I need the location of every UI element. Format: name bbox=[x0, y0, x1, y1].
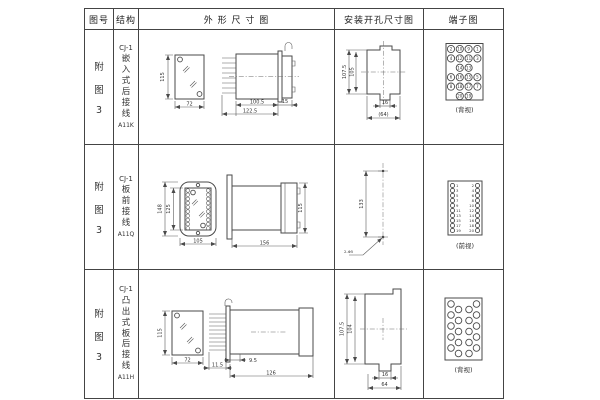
terminal-pins bbox=[209, 314, 226, 350]
structure-char: 接 bbox=[122, 99, 131, 108]
cell-structure-1: CJ-1 嵌 入 式 后 接 线 A11K bbox=[114, 30, 139, 145]
mounting-drawing-a11h: 107.5 104 16 64 bbox=[335, 270, 423, 398]
structure-char: 式 bbox=[122, 319, 131, 328]
cell-structure-3: CJ-1 凸 出 式 板 后 接 线 A11H bbox=[114, 270, 139, 399]
mounting-hole-icon bbox=[196, 183, 199, 186]
dim-label: 115 bbox=[298, 203, 304, 213]
svg-text:4: 4 bbox=[450, 56, 453, 61]
svg-text:1: 1 bbox=[476, 47, 479, 52]
svg-text:19: 19 bbox=[466, 94, 472, 99]
screw-mark-icon bbox=[180, 323, 187, 330]
svg-text:15: 15 bbox=[466, 75, 472, 80]
structure-char: 后 bbox=[122, 340, 131, 349]
screw-hole-icon bbox=[178, 57, 183, 62]
screw-mark-icon bbox=[187, 337, 194, 344]
svg-text:19: 19 bbox=[456, 228, 461, 233]
terminal-circles: 2 10 9 1 4 12 11 3 14 13 6 16 15 5 bbox=[447, 45, 481, 99]
figure-char: 图 bbox=[94, 202, 104, 216]
svg-text:11: 11 bbox=[466, 56, 472, 61]
svg-text:5: 5 bbox=[476, 75, 479, 80]
dim-label: 156 bbox=[260, 241, 270, 247]
screw-hole-icon bbox=[191, 190, 196, 195]
mounting-hole-icon bbox=[196, 231, 199, 234]
structure-model: CJ-1 bbox=[119, 45, 133, 52]
svg-text:12: 12 bbox=[457, 56, 463, 61]
screw-hole-icon bbox=[197, 92, 202, 97]
structure-model: CJ-1 bbox=[119, 286, 133, 293]
structure-code: A11H bbox=[118, 375, 134, 381]
terminal-strip bbox=[186, 189, 190, 230]
svg-text:10: 10 bbox=[457, 47, 463, 52]
header-structure: 结构 bbox=[114, 9, 139, 30]
figure-char: 图 bbox=[94, 82, 104, 96]
dim-label: 148 bbox=[158, 204, 164, 214]
structure-char: 式 bbox=[122, 77, 131, 86]
terminal-circles bbox=[448, 301, 480, 357]
terminal-diagram: 1 2 3 4 5 6 7 8 9 10 11 12 13 14 bbox=[448, 181, 482, 250]
mounting-drawing-a11k: 107.5 105 16 (64) bbox=[335, 30, 423, 144]
figure-char: 附 bbox=[94, 306, 104, 320]
cell-figure-3: 附 图 3 bbox=[85, 270, 114, 399]
screw-hole-icon bbox=[201, 223, 206, 228]
svg-text:2: 2 bbox=[450, 47, 453, 52]
screw-mark-icon bbox=[183, 66, 190, 73]
dim-label: 115 bbox=[158, 328, 164, 338]
svg-text:20: 20 bbox=[457, 94, 463, 99]
cell-outline-3: 115 72 9.5 bbox=[139, 270, 335, 399]
dim-label: 9.5 bbox=[249, 358, 257, 364]
structure-char: 入 bbox=[122, 66, 131, 75]
svg-text:16: 16 bbox=[457, 75, 463, 80]
mounting-drawing-a11q: 133 2-Φ5 bbox=[335, 145, 423, 269]
outline-drawing-a11q: 148 125 105 156 bbox=[139, 145, 334, 269]
terminal-pins bbox=[222, 58, 236, 93]
figure-char: 附 bbox=[94, 179, 104, 193]
outline-front-view: 115 72 bbox=[160, 55, 204, 109]
table-row-a11h: 附 图 3 CJ-1 凸 出 式 板 后 接 线 A11H bbox=[85, 270, 504, 399]
dim-label: 100.5 bbox=[250, 100, 264, 106]
header-figure: 图号 bbox=[85, 9, 114, 30]
structure-char: 板 bbox=[122, 186, 131, 195]
clip-hook-icon bbox=[285, 43, 292, 52]
outline-drawing-a11h: 115 72 9.5 bbox=[139, 270, 334, 398]
dim-label: 115 bbox=[160, 72, 166, 82]
page: 图号 结构 外 形 尺 寸 图 安装开孔尺寸图 端子图 附 图 3 CJ-1 嵌… bbox=[0, 0, 600, 400]
header-mounting: 安装开孔尺寸图 bbox=[335, 9, 424, 30]
dim-label: 16 bbox=[382, 100, 388, 106]
structure-char: 凸 bbox=[122, 297, 131, 306]
structure-char: 前 bbox=[122, 197, 131, 206]
figure-char: 3 bbox=[96, 105, 102, 116]
figure-char: 3 bbox=[96, 352, 102, 363]
structure-char: 线 bbox=[122, 219, 131, 228]
dim-label: 15 bbox=[282, 99, 288, 105]
structure-char: 线 bbox=[122, 110, 131, 119]
view-label: (背视) bbox=[455, 105, 473, 114]
structure-char: 嵌 bbox=[122, 55, 131, 64]
dim-label: 16 bbox=[382, 372, 388, 378]
outline-front-view: 148 125 105 bbox=[158, 182, 217, 246]
svg-text:17: 17 bbox=[466, 84, 472, 89]
header-row: 图号 结构 外 形 尺 寸 图 安装开孔尺寸图 端子图 bbox=[85, 9, 504, 30]
structure-char: 板 bbox=[122, 330, 131, 339]
terminal-drawing-a11h: (背视) bbox=[424, 270, 503, 398]
dim-label: 11.5 bbox=[212, 363, 223, 369]
dim-label: 72 bbox=[184, 358, 190, 364]
mounting-hole-diagram: 107.5 105 16 (64) bbox=[342, 41, 406, 120]
dim-label: 125 bbox=[166, 204, 172, 214]
leader-line bbox=[349, 238, 382, 255]
svg-text:13: 13 bbox=[466, 65, 472, 70]
dim-label: 122.5 bbox=[243, 109, 257, 115]
dim-label: 64 bbox=[381, 382, 387, 388]
structure-code: A11Q bbox=[118, 232, 134, 238]
dim-label: (64) bbox=[378, 112, 388, 118]
cell-structure-2: CJ-1 板 前 接 线 A11Q bbox=[114, 145, 139, 270]
spec-table: 图号 结构 外 形 尺 寸 图 安装开孔尺寸图 端子图 附 图 3 CJ-1 嵌… bbox=[84, 8, 504, 399]
hole-marker bbox=[382, 170, 385, 173]
structure-model: CJ-1 bbox=[119, 176, 133, 183]
figure-char: 附 bbox=[94, 59, 104, 73]
dim-label: 126 bbox=[266, 371, 276, 377]
screw-hole-icon bbox=[196, 348, 201, 353]
clip-hook-icon bbox=[225, 299, 232, 306]
outline-side-view: 100.5 15 122.5 bbox=[222, 43, 299, 117]
outline-side-view: 156 115 bbox=[227, 175, 308, 248]
structure-char: 接 bbox=[122, 351, 131, 360]
cell-mounting-3: 107.5 104 16 64 bbox=[335, 270, 424, 399]
cell-figure-1: 附 图 3 bbox=[85, 30, 114, 145]
svg-text:3: 3 bbox=[476, 56, 479, 61]
terminal-strip bbox=[206, 189, 210, 230]
svg-text:7: 7 bbox=[476, 84, 479, 89]
figure-char: 3 bbox=[96, 225, 102, 236]
screw-mark-icon bbox=[192, 200, 198, 206]
dim-label: 105 bbox=[193, 239, 203, 245]
hole-note-label: 2-Φ5 bbox=[344, 249, 354, 254]
header-outline: 外 形 尺 寸 图 bbox=[139, 9, 335, 30]
cell-outline-2: 148 125 105 156 bbox=[139, 145, 335, 270]
outline-drawing-a11k: 115 72 100.5 bbox=[139, 30, 334, 144]
svg-text:9: 9 bbox=[467, 47, 470, 52]
structure-char: 后 bbox=[122, 88, 131, 97]
terminal-drawing-a11q: 1 2 3 4 5 6 7 8 9 10 11 12 13 14 bbox=[424, 145, 503, 269]
cell-terminal-2: 1 2 3 4 5 6 7 8 9 10 11 12 13 14 bbox=[424, 145, 504, 270]
mounting-hole-diagram: 133 2-Φ5 bbox=[344, 163, 388, 255]
terminal-circles: 1 2 3 4 5 6 7 8 9 10 11 12 13 14 bbox=[450, 183, 479, 233]
structure-code: A11K bbox=[118, 123, 134, 129]
screw-mark-icon bbox=[190, 81, 197, 88]
mounting-hole-diagram: 107.5 104 16 64 bbox=[340, 289, 408, 390]
table-row-a11q: 附 图 3 CJ-1 板 前 接 线 A11Q bbox=[85, 145, 504, 270]
terminal-diagram: (背视) bbox=[445, 298, 482, 374]
terminal-diagram: 2 10 9 1 4 12 11 3 14 13 6 16 15 5 bbox=[446, 44, 483, 115]
cell-mounting-2: 133 2-Φ5 bbox=[335, 145, 424, 270]
table-row-a11k: 附 图 3 CJ-1 嵌 入 式 后 接 线 A11K bbox=[85, 30, 504, 145]
dim-label: 107.5 bbox=[342, 65, 348, 79]
screw-mark-icon bbox=[199, 212, 205, 218]
hole-marker bbox=[382, 236, 385, 239]
dim-label: 104 bbox=[348, 324, 354, 334]
structure-char: 接 bbox=[122, 208, 131, 217]
svg-text:18: 18 bbox=[457, 84, 463, 89]
dim-label: 105 bbox=[350, 67, 356, 77]
figure-char: 图 bbox=[94, 329, 104, 343]
view-label: (前视) bbox=[456, 241, 474, 250]
svg-text:14: 14 bbox=[457, 65, 463, 70]
cell-terminal-3: (背视) bbox=[424, 270, 504, 399]
cell-figure-2: 附 图 3 bbox=[85, 145, 114, 270]
header-terminal: 端子图 bbox=[424, 9, 504, 30]
structure-char: 出 bbox=[122, 308, 131, 317]
terminal-drawing-a11k: 2 10 9 1 4 12 11 3 14 13 6 16 15 5 bbox=[424, 30, 503, 144]
view-label: (背视) bbox=[454, 365, 472, 374]
dim-label: 107.5 bbox=[340, 322, 346, 336]
outline-front-view: 115 72 bbox=[158, 311, 204, 365]
svg-text:8: 8 bbox=[450, 84, 453, 89]
svg-text:6: 6 bbox=[450, 75, 453, 80]
svg-text:20: 20 bbox=[469, 228, 474, 233]
structure-char: 线 bbox=[122, 362, 131, 371]
screw-hole-icon bbox=[175, 313, 180, 318]
cell-mounting-1: 107.5 105 16 (64) bbox=[335, 30, 424, 145]
cell-terminal-1: 2 10 9 1 4 12 11 3 14 13 6 16 15 5 bbox=[424, 30, 504, 145]
cell-outline-1: 115 72 100.5 bbox=[139, 30, 335, 145]
outline-side-view: 9.5 11.5 126 bbox=[203, 299, 313, 378]
dim-label: 72 bbox=[186, 102, 192, 108]
dim-label: 133 bbox=[359, 199, 365, 209]
